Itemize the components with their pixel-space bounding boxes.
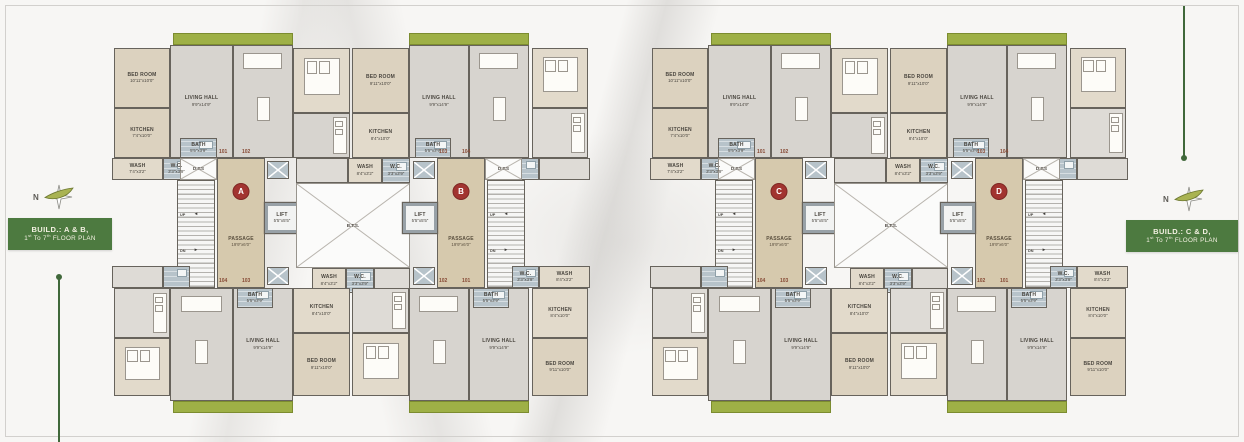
room-label: BED ROOM10'11"x10'0" [653,49,707,107]
room-bath-101: BATH5'5"x3'9" [180,138,217,158]
room-label: BATH5'5"x3'9" [776,289,810,307]
room-bedroom-103-bottom: BED ROOM9'11"x10'0" [293,333,350,396]
room-dims: 9'9"x14'9" [730,102,749,108]
room-dims: 9'9"x14'9" [1027,345,1046,351]
area-label: B.T.S. [297,184,409,267]
dts-label: D.T.S [498,166,509,172]
build-ab-line1: BUILD.: A & B, [31,225,88,235]
room-bath-103: BATH5'5"x3'9" [953,138,989,158]
room-living-hall-102 [771,45,831,158]
north-label: N [33,193,39,202]
room-service-102 [296,158,348,183]
room-wc-101-bottom: W.C.3'3"x3'9" [1050,266,1077,288]
bed-furniture [140,350,151,362]
unit-101: 101 [219,149,227,155]
room-dims: 8'4"x10'0" [550,313,569,319]
duct-right-bottom [413,267,435,285]
lift-left: LIFT5'5"x5'5" [265,203,299,233]
room-dims: 9'11"x10'0" [549,367,570,373]
room-label: BATH5'5"x3'9" [719,139,754,157]
dts-label: D.T.S [193,166,204,172]
kitchen-furniture [932,304,941,310]
room-dims: 8'4"x3'2" [321,281,338,287]
room-wash-104-bottom [650,266,701,288]
room-dims: 8'4"x10'0" [312,311,331,317]
duct-right-top [413,161,435,179]
room-dims: 9'11"x10'0" [370,81,391,87]
passage-right: BPASSAGE19'9"x6'0" [437,158,485,288]
room-label: BATH5'5"x3'9" [181,139,216,157]
bed-furniture [558,60,569,72]
duct-right-bottom [951,267,973,285]
bed-furniture [307,61,318,74]
room-wash-103-top: WASH8'4"x3'2" [348,158,382,183]
room-dims: 5'5"x3'9" [247,298,264,304]
core-letter-badge-B: B [453,183,470,200]
lift-dims: 5'5"x5'5" [950,218,967,224]
room-kitchen-102-bottom [352,288,409,333]
duct-left-top [805,161,827,179]
room-wash-103-top: WASH8'4"x3'2" [886,158,920,183]
stairs-up-label: UP [180,213,185,217]
balcony-top-right [947,33,1067,45]
room-wash-101-bottom: WASH8'4"x3'2" [1077,266,1128,288]
sofa-furniture [733,340,746,364]
room-service-102 [834,158,886,183]
bed-furniture [665,350,676,362]
room-dims: 5'5"x3'9" [1021,298,1038,304]
room-bedroom-102 [831,48,888,113]
room-dims: 9'9"x14'9" [253,345,272,351]
core-letter-badge-A: A [233,183,250,200]
room-dims: 5'5"x3'9" [190,148,207,154]
plan-build-cd: BED ROOM10'11"x10'0"LIVING HALL9'9"x14'9… [650,31,1128,415]
kitchen-furniture [335,121,344,127]
room-kitchen-103-bottom: KITCHEN8'4"x10'0" [293,288,350,333]
kitchen-furniture [1111,117,1119,124]
room-living-hall-104-bottom [708,288,771,401]
sofa-furniture [243,53,282,69]
sofa-furniture [795,97,807,121]
room-dims: 9'9"x14'9" [489,345,508,351]
room-dims: 8'4"x3'2" [859,281,876,287]
dts-left: D.T.S [180,158,217,180]
room-kitchen-102-bottom [890,288,947,333]
unit-102b: 102 [977,278,985,284]
kitchen-furniture [155,305,163,312]
room-wc-103-bottom: W.C.3'3"x3'9" [884,268,912,293]
lift-label: LIFT5'5"x5'5" [406,206,434,230]
passage-dims: 19'9"x6'0" [438,242,484,248]
room-dims: 9'11"x10'0" [1087,367,1108,373]
room-label: BED ROOM9'11"x10'0" [353,49,408,112]
kitchen-furniture [155,297,163,304]
north-label-right: N [1163,195,1169,204]
room-dims: 9'11"x10'0" [908,81,929,87]
unit-101: 101 [757,149,765,155]
room-label: WASH8'4"x3'2" [540,267,589,287]
room-dims: 5'5"x3'9" [728,148,745,154]
build-cd-title: BUILD.: C & D, 1st To 7th FLOOR PLAN [1126,220,1238,252]
room-dims: 8'4"x3'2" [357,171,374,177]
lift-left: LIFT5'5"x5'5" [803,203,837,233]
stairs-down-label: DN [1028,249,1033,253]
room-dims: 9'9"x14'9" [192,102,211,108]
room-dims: 3'3"x3'9" [388,171,405,177]
room-wash-104-bottom [112,266,163,288]
room-label: BED ROOM9'11"x10'0" [832,334,887,395]
room-dims: 9'9"x14'9" [429,102,448,108]
sofa-furniture [419,296,458,312]
balcony-top-right [409,33,529,45]
unit-102b: 102 [439,278,447,284]
dts-label: D.T.S [731,166,742,172]
bed-furniture [845,61,856,74]
unit-103b: 103 [977,149,985,155]
room-dims: 7'4"x3'2" [129,169,146,175]
sofa-furniture [971,340,983,364]
right-guide-line [1183,6,1185,158]
lift-dims: 5'5"x5'5" [412,218,429,224]
room-bedroom-101: BED ROOM10'11"x10'0" [114,48,170,108]
kitchen-furniture [1111,125,1119,132]
compass-leaf-icon-right [1171,186,1207,212]
room-dims: 9'9"x14'9" [967,102,986,108]
room-wc-101-bottom: W.C.3'3"x3'9" [512,266,539,288]
compass-leaf-icon [41,184,77,210]
room-bedroom-102 [293,48,350,113]
sofa-furniture [257,97,269,121]
room-label: W.C.3'3"x3'9" [1051,267,1076,287]
kitchen-furniture [693,305,701,312]
room-wc-103-bottom: W.C.3'3"x3'9" [346,268,374,293]
duct-left-bottom [267,267,289,285]
room-bedroom-102-bottom [352,333,409,396]
room-dims: 9'11"x10'0" [849,365,870,371]
dts-right: D.T.S [485,158,522,180]
duct-right-top [951,161,973,179]
north-compass-icon: N [33,183,85,211]
sofa-furniture [957,296,996,312]
room-label: W.C.3'3"x3'9" [921,159,947,182]
room-dims: 5'5"x3'9" [483,298,500,304]
room-kitchen-103: KITCHEN8'4"x10'0" [352,113,409,158]
bed-furniture [1083,60,1094,72]
bed-furniture [904,346,915,359]
room-dims: 3'3"x3'9" [352,281,369,287]
room-label: BED ROOM10'11"x10'0" [115,49,169,107]
void-label: B.T.S. [347,223,360,229]
north-compass-icon-right: N [1163,185,1215,213]
balcony-bottom-right [947,401,1067,413]
room-bedroom-104-bottom [652,338,708,396]
lift-label: LIFT5'5"x5'5" [806,206,834,230]
dts-left: D.T.S [718,158,755,180]
bed-furniture [319,61,330,74]
room-dims: 9'9"x14'9" [791,345,810,351]
kitchen-furniture [873,121,882,127]
area-label: D.T.S [1024,159,1059,179]
area-label: D.T.S [181,159,216,179]
core-letter-badge-C: C [771,183,788,200]
room-wash-101: WASH7'4"x3'2" [650,158,701,180]
room-label: WASH7'4"x3'2" [651,159,700,179]
room-label: KITCHEN8'4"x10'0" [353,114,408,157]
room-label: KITCHEN8'4"x10'0" [832,289,887,332]
room-label: W.C.3'3"x3'9" [885,269,911,292]
passage-dims: 19'9"x6'0" [976,242,1022,248]
room-label: WASH8'4"x3'2" [1078,267,1127,287]
room-kitchen-104-bottom [652,288,708,338]
room-dims: 9'11"x10'0" [311,365,332,371]
passage-label: PASSAGE19'9"x6'0" [438,236,484,248]
room-label: KITCHEN8'4"x10'0" [294,289,349,332]
void-label: B.T.S. [885,223,898,229]
room-label: WASH7'4"x3'2" [113,159,162,179]
lift-dims: 5'5"x5'5" [812,218,829,224]
room-wash-101-bottom: WASH8'4"x3'2" [539,266,590,288]
room-kitchen-104 [1070,108,1126,158]
room-bath-101-bottom: BATH5'5"x3'9" [1011,288,1047,308]
room-label: BED ROOM9'11"x10'0" [891,49,946,112]
bed-furniture [1096,60,1107,72]
sofa-furniture [493,97,505,121]
room-dims: 8'4"x10'0" [909,136,928,142]
sofa-furniture [195,340,208,364]
room-bedroom-102-bottom [890,333,947,396]
bed-furniture [366,346,377,359]
room-bath-101-bottom: BATH5'5"x3'9" [473,288,509,308]
room-dims: 8'4"x10'0" [1088,313,1107,319]
room-wc-103-top: W.C.3'3"x3'9" [920,158,948,183]
unit-102: 102 [780,149,788,155]
room-kitchen-104-bottom [114,288,170,338]
balcony-bottom-left [173,401,293,413]
right-guide-dot [1181,155,1187,161]
room-bedroom-101-bottom: BED ROOM9'11"x10'0" [1070,338,1126,396]
left-guide-line [58,277,60,442]
room-label: KITCHEN8'4"x10'0" [533,289,587,337]
area-label: D.T.S [719,159,754,179]
dts-label: D.T.S [1036,166,1047,172]
bed-furniture [857,61,868,74]
room-label: BATH5'5"x3'9" [474,289,508,307]
balcony-top-left [173,33,293,45]
bed-furniture [545,60,556,72]
stairs-up-label: UP [490,213,495,217]
room-wc-103-top: W.C.3'3"x3'9" [382,158,410,183]
dts-right: D.T.S [1023,158,1060,180]
room-dims: 8'4"x3'2" [895,171,912,177]
room-wc-104-bottom [701,266,728,288]
left-guide-dot [56,274,62,280]
kitchen-furniture [693,297,701,304]
room-dims: 5'5"x3'9" [785,298,802,304]
room-label: KITCHEN7'4"x10'0" [115,109,169,157]
kitchen-furniture [394,296,403,302]
room-label: KITCHEN8'4"x10'0" [891,114,946,157]
room-label: BED ROOM9'11"x10'0" [1071,339,1125,395]
bed-furniture [678,350,689,362]
stairs-up-label: UP [1028,213,1033,217]
room-bedroom-101: BED ROOM10'11"x10'0" [652,48,708,108]
room-wc-104-bottom [163,266,190,288]
kitchen-furniture [394,304,403,310]
passage-right: DPASSAGE19'9"x6'0" [975,158,1023,288]
room-label: W.C.3'3"x3'9" [347,269,373,292]
room-living-hall-102 [233,45,293,158]
bed-furniture [127,350,138,362]
build-cd-line2: 1st To 7th FLOOR PLAN [1146,237,1217,246]
room-label: BATH5'5"x3'9" [1012,289,1046,307]
room-bath-103: BATH5'5"x3'9" [415,138,451,158]
floor-plan-sheet: N BUILD.: A & B, 1st To 7th FLOOR PLAN N… [0,0,1244,442]
room-dims: 8'4"x3'2" [556,277,573,283]
room-dims: 10'11"x10'0" [668,78,692,84]
sofa-furniture [1031,97,1043,121]
lift-label: LIFT5'5"x5'5" [944,206,972,230]
room-bath-103-bottom: BATH5'5"x3'9" [775,288,811,308]
room-dims: 3'3"x3'9" [517,277,534,283]
room-kitchen-101-bottom: KITCHEN8'4"x10'0" [532,288,588,338]
stairs-down-label: DN [490,249,495,253]
unit-102: 102 [242,149,250,155]
lift-dims: 5'5"x5'5" [274,218,291,224]
kitchen-furniture [932,296,941,302]
room-living-hall-104-bottom [170,288,233,401]
duct-left-bottom [805,267,827,285]
bed-furniture [378,346,389,359]
balcony-top-left [711,33,831,45]
sofa-furniture [479,53,518,69]
room-dims: 10'11"x10'0" [130,78,154,84]
room-kitchen-104 [532,108,588,158]
unit-103: 103 [780,278,788,284]
sofa-furniture [719,296,760,312]
room-label: W.C.3'3"x3'9" [513,267,538,287]
build-ab-title: BUILD.: A & B, 1st To 7th FLOOR PLAN [8,218,112,250]
stairs-down-label: DN [180,249,185,253]
room-dims: 3'3"x3'9" [926,171,943,177]
core-letter-badge-D: D [991,183,1008,200]
room-kitchen-101: KITCHEN7'4"x10'0" [652,108,708,158]
duct-left-top [267,161,289,179]
lift-right: LIFT5'5"x5'5" [941,203,975,233]
passage-dims: 19'9"x6'0" [756,242,802,248]
room-label: BED ROOM9'11"x10'0" [294,334,349,395]
passage-label: PASSAGE19'9"x6'0" [756,236,802,248]
room-kitchen-101-bottom: KITCHEN8'4"x10'0" [1070,288,1126,338]
room-bedroom-101-bottom: BED ROOM9'11"x10'0" [532,338,588,396]
unit-104: 104 [757,278,765,284]
passage-label: PASSAGE19'9"x6'0" [218,236,264,248]
room-dims: 7'4"x3'2" [667,169,684,175]
sofa-furniture [1017,53,1056,69]
room-label: KITCHEN8'4"x10'0" [1071,289,1125,337]
room-label: KITCHEN7'4"x10'0" [653,109,707,157]
room-living-hall-102-bottom [409,288,469,401]
stairs-down-label: DN [718,249,723,253]
lift-right: LIFT5'5"x5'5" [403,203,437,233]
passage-left: CPASSAGE19'9"x6'0" [755,158,803,288]
room-dims: 3'3"x3'9" [1055,277,1072,283]
unit-104b: 104 [1000,149,1008,155]
room-label: WASH8'4"x3'2" [887,159,919,182]
room-living-hall-104 [469,45,529,158]
room-kitchen-103: KITCHEN8'4"x10'0" [890,113,947,158]
unit-101b: 101 [1000,278,1008,284]
build-cd-line1: BUILD.: C & D, [1153,227,1211,237]
room-kitchen-103-bottom: KITCHEN8'4"x10'0" [831,288,888,333]
bts-void: B.T.S. [296,183,410,268]
unit-104b: 104 [462,149,470,155]
room-dims: 8'4"x10'0" [850,311,869,317]
lift-label: LIFT5'5"x5'5" [268,206,296,230]
room-kitchen-101: KITCHEN7'4"x10'0" [114,108,170,158]
room-label: BED ROOM9'11"x10'0" [533,339,587,395]
kitchen-furniture [873,129,882,135]
kitchen-furniture [573,117,581,124]
room-dims: 3'3"x3'9" [890,281,907,287]
room-dims: 8'4"x3'2" [1094,277,1111,283]
unit-104: 104 [219,278,227,284]
sofa-furniture [433,340,445,364]
room-label: W.C.3'3"x3'9" [383,159,409,182]
bts-void: B.T.S. [834,183,948,268]
room-dims: 7'4"x10'0" [132,133,151,139]
room-kitchen-102 [831,113,888,158]
sofa-furniture [781,53,820,69]
room-label: BATH5'5"x3'9" [238,289,272,307]
unit-103b: 103 [439,149,447,155]
room-wash-104 [1077,158,1128,180]
room-bedroom-104 [532,48,588,108]
unit-101b: 101 [462,278,470,284]
room-bedroom-103-bottom: BED ROOM9'11"x10'0" [831,333,888,396]
stairs-up-label: UP [718,213,723,217]
kitchen-furniture [573,125,581,132]
sofa-furniture [181,296,222,312]
room-bath-103-bottom: BATH5'5"x3'9" [237,288,273,308]
balcony-bottom-left [711,401,831,413]
area-label: B.T.S. [835,184,947,267]
room-bedroom-103: BED ROOM9'11"x10'0" [352,48,409,113]
passage-left: APASSAGE19'9"x6'0" [217,158,265,288]
room-bedroom-104-bottom [114,338,170,396]
build-ab-line2: 1st To 7th FLOOR PLAN [24,235,95,244]
room-bedroom-103: BED ROOM9'11"x10'0" [890,48,947,113]
room-living-hall-102-bottom [947,288,1007,401]
plan-build-ab: BED ROOM10'11"x10'0"LIVING HALL9'9"x14'9… [112,31,590,415]
bed-furniture [916,346,927,359]
passage-dims: 19'9"x6'0" [218,242,264,248]
balcony-bottom-right [409,401,529,413]
room-label: WASH8'4"x3'2" [349,159,381,182]
room-living-hall-104 [1007,45,1067,158]
room-dims: 7'4"x10'0" [670,133,689,139]
area-label: D.T.S [486,159,521,179]
unit-103: 103 [242,278,250,284]
room-bath-101: BATH5'5"x3'9" [718,138,755,158]
passage-label: PASSAGE19'9"x6'0" [976,236,1022,248]
room-wash-101: WASH7'4"x3'2" [112,158,163,180]
room-dims: 8'4"x10'0" [371,136,390,142]
room-kitchen-102 [293,113,350,158]
kitchen-furniture [335,129,344,135]
room-wash-104 [539,158,590,180]
room-bedroom-104 [1070,48,1126,108]
